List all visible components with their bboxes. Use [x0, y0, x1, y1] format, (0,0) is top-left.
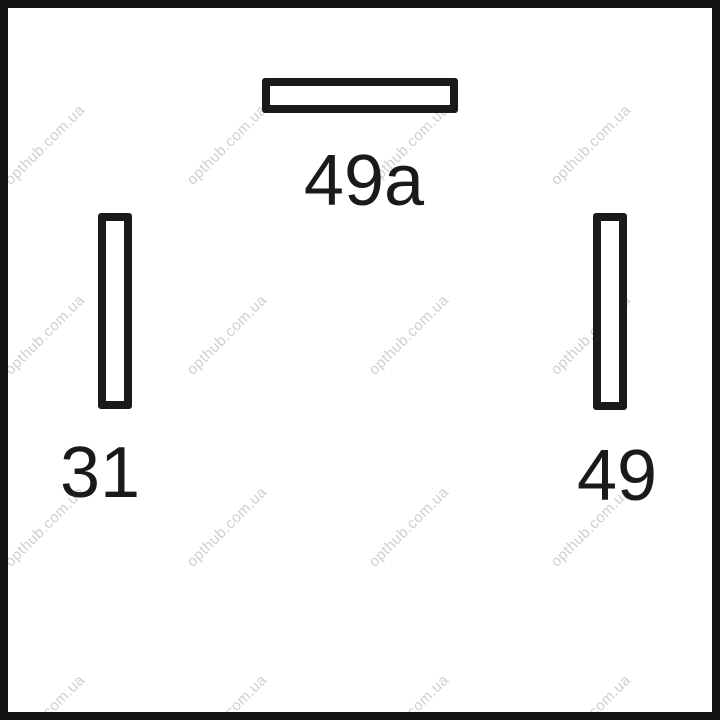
- watermark-text: opthub.com.ua: [366, 672, 453, 720]
- watermark-text: opthub.com.ua: [366, 292, 453, 379]
- watermark-text: opthub.com.ua: [2, 672, 89, 720]
- terminal-31-label: 31: [60, 437, 140, 509]
- terminal-49-label: 49: [577, 440, 657, 512]
- watermark-text: opthub.com.ua: [548, 102, 635, 189]
- terminal-31-slot: [98, 213, 132, 409]
- watermark-text: opthub.com.ua: [184, 672, 271, 720]
- relay-pinout-diagram: opthub.com.uaopthub.com.uaopthub.com.uao…: [0, 0, 720, 720]
- watermark-text: opthub.com.ua: [2, 292, 89, 379]
- watermark-text: opthub.com.ua: [184, 102, 271, 189]
- watermark-text: opthub.com.ua: [184, 484, 271, 571]
- terminal-49a-slot: [262, 78, 458, 113]
- terminal-49-slot: [593, 213, 627, 410]
- watermark-text: opthub.com.ua: [548, 672, 635, 720]
- watermark-text: opthub.com.ua: [184, 292, 271, 379]
- terminal-49a-label: 49a: [304, 145, 424, 217]
- watermark-text: opthub.com.ua: [366, 484, 453, 571]
- watermark-text: opthub.com.ua: [2, 102, 89, 189]
